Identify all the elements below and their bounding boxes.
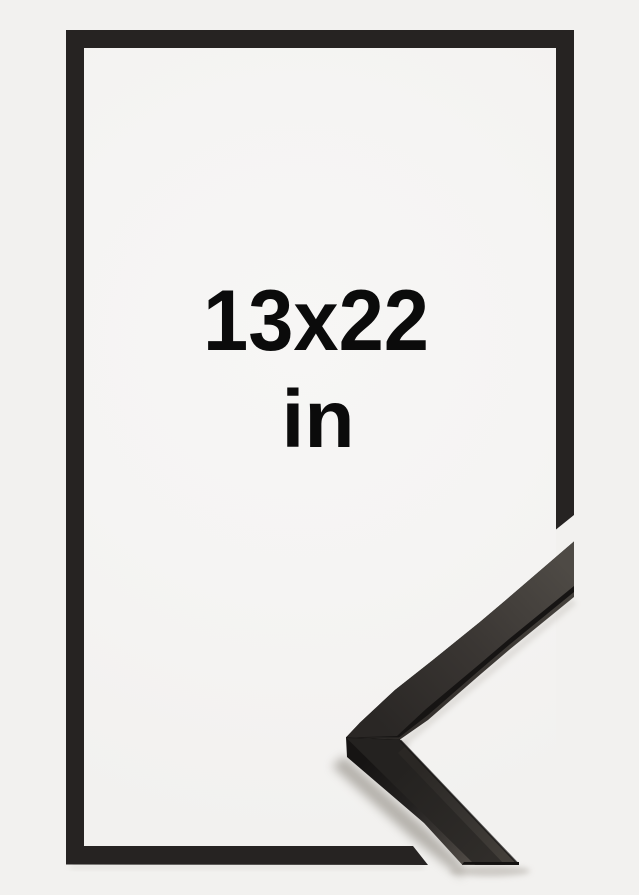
svg-text:13x22: 13x22: [203, 273, 429, 369]
svg-text:in: in: [282, 374, 355, 465]
